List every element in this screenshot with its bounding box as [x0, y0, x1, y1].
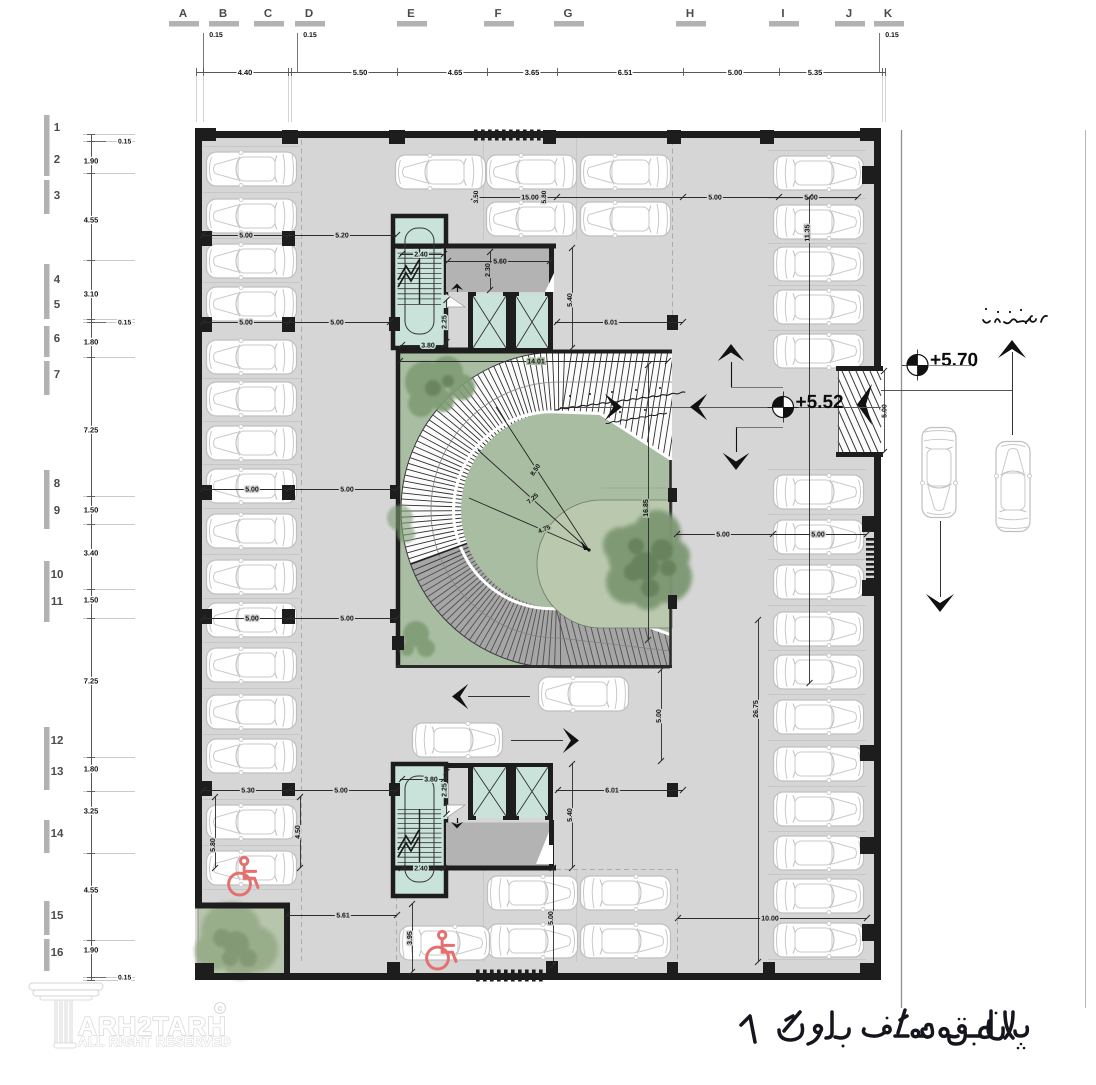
svg-text:2.30: 2.30	[485, 263, 492, 277]
svg-text:D: D	[305, 8, 313, 20]
svg-text:5.00: 5.00	[882, 404, 889, 418]
svg-text:15.00: 15.00	[521, 194, 539, 201]
svg-text:ALL RIGHT RESERVED: ALL RIGHT RESERVED	[78, 1034, 231, 1049]
svg-text:5.00: 5.00	[728, 68, 743, 77]
svg-text:5.60: 5.60	[493, 258, 507, 265]
svg-text:14: 14	[51, 828, 64, 840]
svg-text:0.15: 0.15	[118, 320, 131, 327]
svg-text:5.35: 5.35	[808, 68, 823, 77]
svg-text:5.00: 5.00	[245, 486, 259, 493]
svg-text:26.75: 26.75	[753, 700, 760, 718]
svg-text:3.95: 3.95	[407, 931, 414, 945]
svg-text:1.50: 1.50	[84, 506, 99, 515]
svg-text:4.50: 4.50	[295, 825, 302, 839]
svg-text:5.00: 5.00	[239, 319, 253, 326]
svg-text:5.00: 5.00	[656, 709, 663, 723]
svg-text:3.40: 3.40	[84, 549, 99, 558]
svg-text:1.50: 1.50	[84, 596, 99, 605]
svg-text:10: 10	[51, 569, 64, 581]
svg-text:7.25: 7.25	[84, 677, 99, 686]
svg-text:1: 1	[54, 122, 61, 134]
svg-text:11.35: 11.35	[805, 224, 812, 241]
svg-text:c: c	[217, 1003, 222, 1013]
svg-text:5.50: 5.50	[353, 68, 368, 77]
svg-text:16.85: 16.85	[643, 499, 650, 517]
svg-text:5.00: 5.00	[716, 531, 730, 538]
svg-text:5.00: 5.00	[334, 787, 348, 794]
svg-text:0.15: 0.15	[118, 139, 131, 146]
svg-text:I: I	[781, 8, 784, 20]
svg-text:0.15: 0.15	[885, 32, 899, 39]
svg-text:10.00: 10.00	[761, 915, 779, 922]
svg-text:3.10: 3.10	[84, 290, 99, 299]
svg-text:4.65: 4.65	[448, 68, 463, 77]
svg-text:2.25: 2.25	[442, 783, 449, 797]
svg-text:5.80: 5.80	[210, 838, 217, 852]
svg-text:G: G	[564, 8, 573, 20]
svg-text:4.40: 4.40	[238, 68, 253, 77]
svg-text:5.20: 5.20	[335, 232, 349, 239]
svg-text:5.00: 5.00	[708, 194, 722, 201]
svg-text:5.00: 5.00	[245, 615, 259, 622]
svg-text:5.00: 5.00	[239, 232, 253, 239]
svg-text:14.01: 14.01	[527, 358, 545, 365]
svg-text:2.40: 2.40	[414, 865, 428, 872]
svg-text:8: 8	[54, 478, 61, 490]
svg-text:16: 16	[51, 947, 64, 959]
svg-text:5.00: 5.00	[548, 911, 555, 925]
svg-text:1.90: 1.90	[84, 946, 99, 955]
svg-text:A: A	[179, 8, 187, 20]
svg-text:9: 9	[54, 505, 60, 517]
svg-text:5.30: 5.30	[241, 787, 255, 794]
svg-text:F: F	[494, 8, 501, 20]
svg-text:6.01: 6.01	[605, 787, 619, 794]
svg-text:11: 11	[51, 596, 64, 608]
svg-text:2: 2	[54, 154, 60, 166]
svg-text:4: 4	[54, 274, 61, 286]
svg-text:5.00: 5.00	[330, 319, 344, 326]
svg-text:3.25: 3.25	[84, 807, 99, 816]
svg-text:12: 12	[51, 735, 64, 747]
svg-text:5.00: 5.00	[811, 531, 825, 538]
svg-text:5.00: 5.00	[340, 615, 354, 622]
svg-text:1.90: 1.90	[84, 157, 99, 166]
svg-text:5.40: 5.40	[567, 293, 574, 307]
svg-text:E: E	[407, 8, 415, 20]
svg-text:+5.70: +5.70	[930, 350, 978, 371]
svg-text:6.51: 6.51	[618, 68, 633, 77]
svg-text:0.15: 0.15	[303, 32, 317, 39]
svg-text:2.40: 2.40	[414, 251, 428, 258]
svg-text:5.80: 5.80	[541, 190, 548, 203]
svg-text:C: C	[264, 8, 272, 20]
svg-text:4.55: 4.55	[84, 886, 99, 895]
svg-text:0.15: 0.15	[209, 32, 223, 39]
svg-text:4.55: 4.55	[84, 216, 99, 225]
svg-text:J: J	[846, 8, 852, 20]
svg-text:+5.52: +5.52	[796, 392, 844, 413]
svg-text:3.80: 3.80	[424, 776, 438, 783]
svg-text:1.80: 1.80	[84, 765, 99, 774]
svg-text:7.25: 7.25	[84, 426, 99, 435]
svg-text:3.65: 3.65	[525, 68, 540, 77]
svg-text:0.15: 0.15	[118, 975, 131, 982]
svg-text:2.25: 2.25	[442, 315, 449, 329]
svg-text:K: K	[884, 8, 893, 20]
svg-text:5.61: 5.61	[336, 912, 350, 919]
svg-text:7: 7	[54, 369, 60, 381]
svg-text:6.01: 6.01	[604, 319, 618, 326]
svg-text:3: 3	[54, 190, 60, 202]
svg-text:H: H	[686, 8, 694, 20]
svg-text:B: B	[219, 8, 227, 20]
svg-text:5.40: 5.40	[567, 808, 574, 822]
svg-text:3.80: 3.80	[421, 342, 435, 349]
svg-text:5.00: 5.00	[340, 486, 354, 493]
svg-text:1.80: 1.80	[84, 338, 99, 347]
svg-text:6: 6	[54, 333, 60, 345]
svg-text:3.50: 3.50	[473, 190, 480, 203]
svg-text:15: 15	[51, 910, 64, 922]
svg-text:13: 13	[51, 766, 64, 778]
svg-text:5: 5	[54, 299, 61, 311]
